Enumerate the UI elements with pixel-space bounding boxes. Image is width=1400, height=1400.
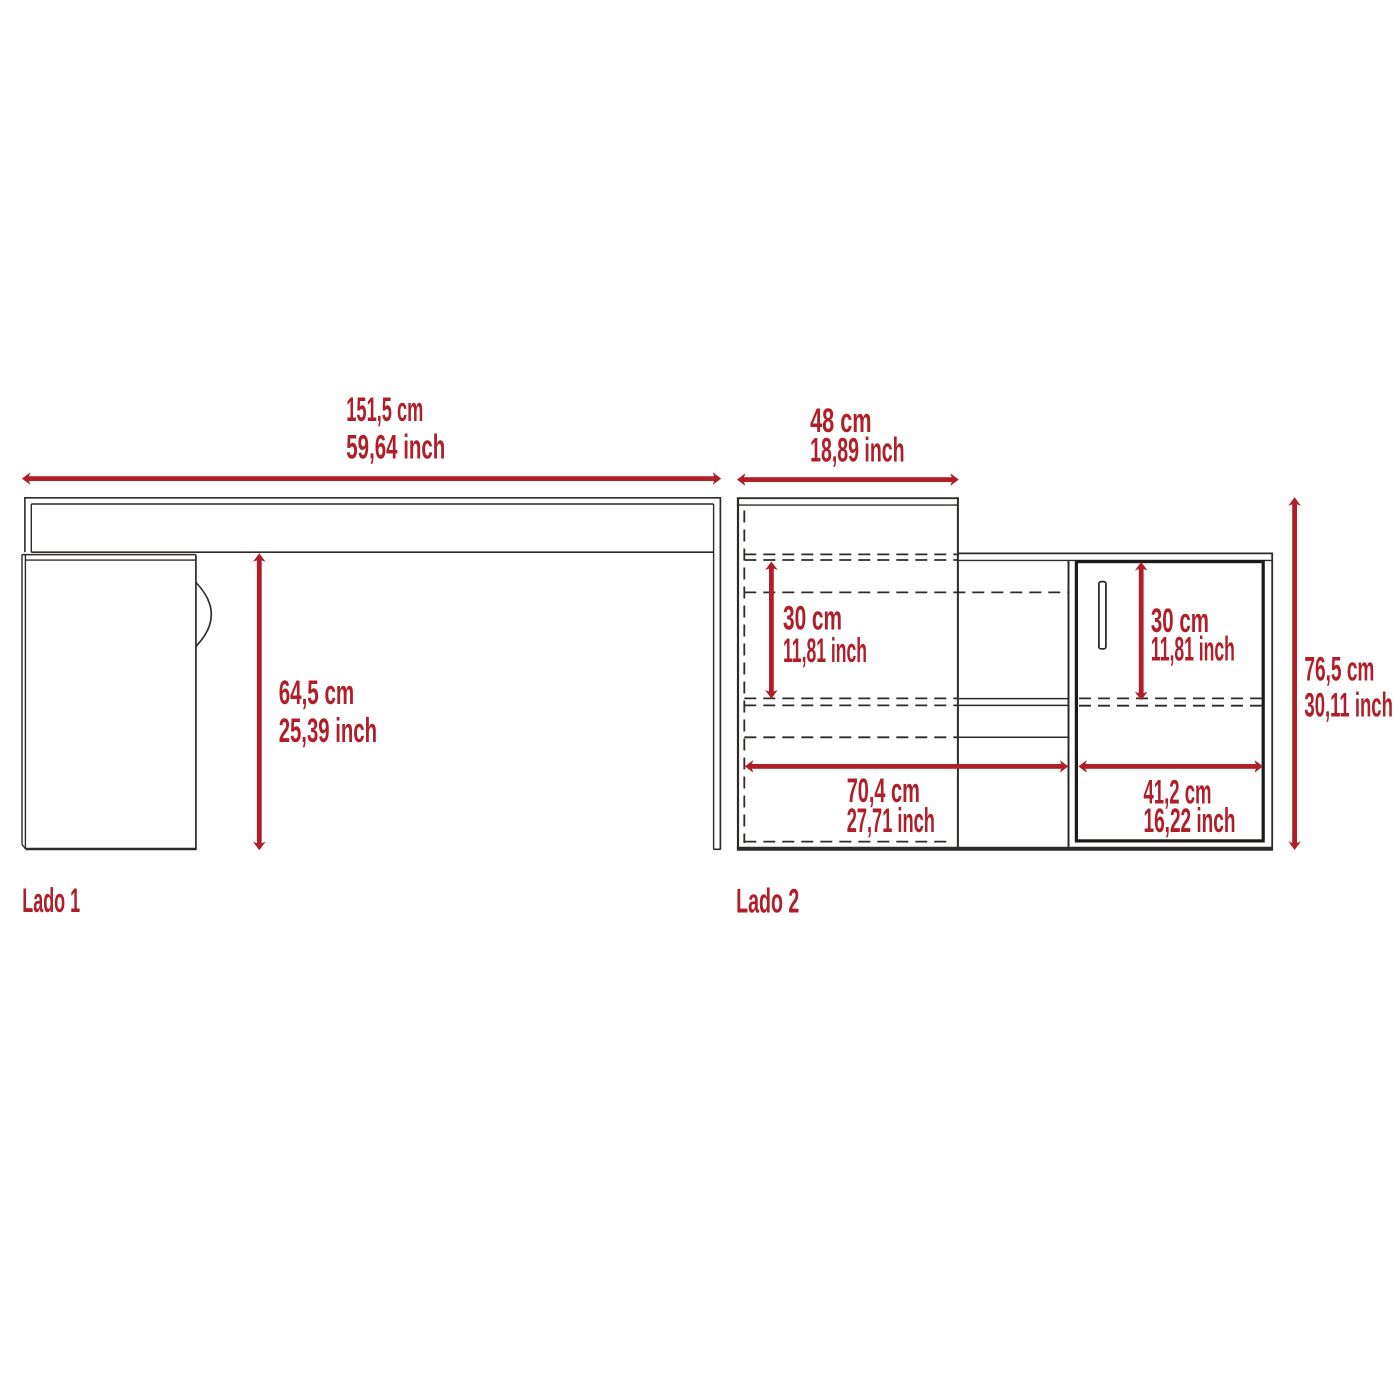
svg-text:11,81 inch: 11,81 inch — [783, 632, 867, 670]
svg-text:151,5 cm: 151,5 cm — [346, 391, 423, 429]
svg-text:59,64 inch: 59,64 inch — [346, 428, 445, 466]
svg-text:18,89 inch: 18,89 inch — [810, 431, 905, 469]
svg-text:64,5 cm: 64,5 cm — [279, 674, 355, 712]
svg-text:25,39 inch: 25,39 inch — [279, 712, 377, 750]
svg-text:Lado 1: Lado 1 — [22, 882, 80, 920]
svg-text:30,11 inch: 30,11 inch — [1304, 686, 1393, 724]
svg-text:16,22 inch: 16,22 inch — [1144, 802, 1236, 840]
svg-text:76,5 cm: 76,5 cm — [1304, 651, 1374, 689]
svg-text:Lado 2: Lado 2 — [736, 883, 799, 921]
svg-text:27,71 inch: 27,71 inch — [847, 802, 935, 840]
svg-text:11,81 inch: 11,81 inch — [1151, 630, 1235, 668]
